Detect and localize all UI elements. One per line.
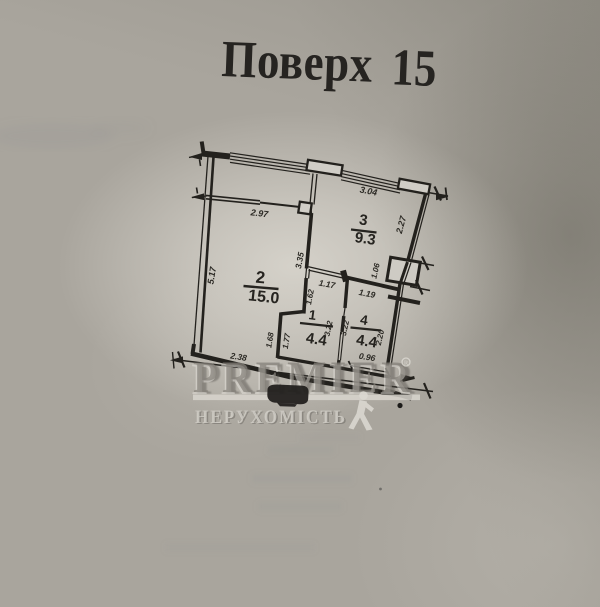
svg-text:1.19: 1.19 [358, 287, 376, 300]
svg-text:3.22: 3.22 [339, 319, 351, 337]
svg-text:15.0: 15.0 [247, 287, 280, 307]
svg-text:3: 3 [358, 211, 369, 229]
svg-text:2.27: 2.27 [394, 214, 409, 235]
svg-text:5.17: 5.17 [205, 265, 218, 285]
svg-text:4.4: 4.4 [355, 332, 379, 352]
svg-text:4.4: 4.4 [305, 330, 329, 350]
svg-text:3.22: 3.22 [323, 319, 335, 337]
svg-text:R: R [404, 360, 409, 367]
svg-text:2.38: 2.38 [229, 350, 248, 363]
svg-text:Поверх: Поверх [221, 30, 374, 94]
svg-text:1.77: 1.77 [281, 332, 292, 349]
svg-text:9.3: 9.3 [354, 229, 377, 249]
svg-text:1.06: 1.06 [369, 262, 381, 280]
svg-text:0.96: 0.96 [358, 351, 376, 364]
svg-text:1.62: 1.62 [304, 288, 316, 306]
svg-text:PREMIER: PREMIER [192, 354, 414, 404]
svg-text:2.20: 2.20 [374, 328, 387, 347]
svg-text:15: 15 [390, 38, 437, 98]
svg-text:НЕРУХОМІСТЬ: НЕРУХОМІСТЬ [195, 407, 347, 428]
svg-text:2: 2 [255, 268, 266, 288]
svg-text:1: 1 [308, 307, 318, 323]
svg-text:PREMIER: PREMIER [193, 352, 415, 402]
svg-text:3.35: 3.35 [293, 251, 306, 269]
svg-text:2.97: 2.97 [249, 207, 270, 219]
svg-text:3.04: 3.04 [359, 184, 378, 197]
svg-text:4: 4 [359, 312, 369, 328]
svg-text:PREMIER: PREMIER [196, 354, 418, 404]
svg-text:1.68: 1.68 [264, 331, 275, 348]
svg-text:НЕРУХОМІСТЬ: НЕРУХОМІСТЬ [197, 408, 349, 429]
svg-text:1.17: 1.17 [318, 278, 337, 291]
